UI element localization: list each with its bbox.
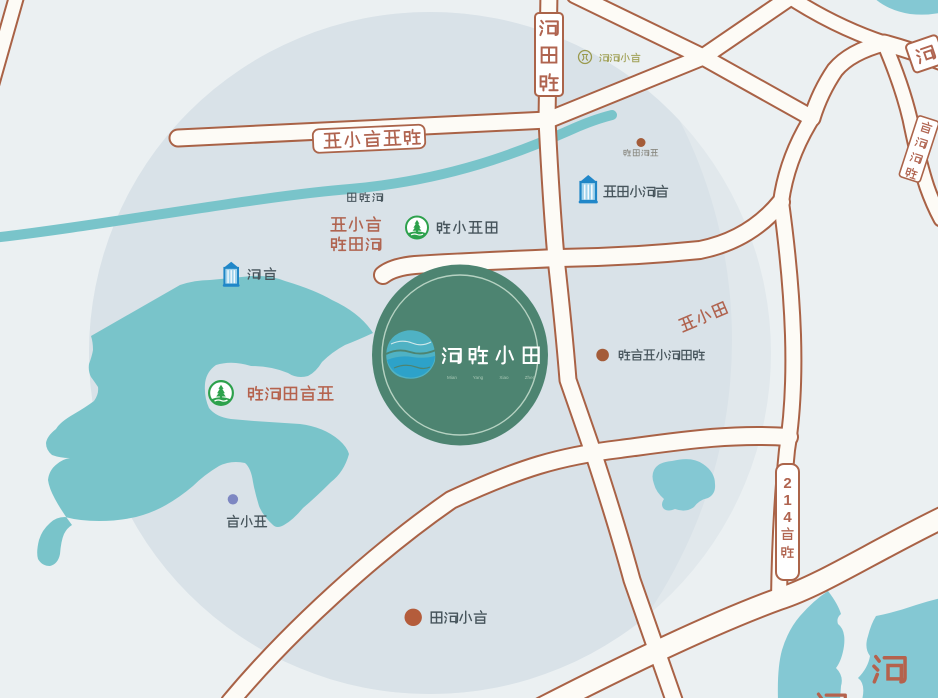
svg-text:2: 2 — [783, 475, 791, 492]
svg-text:4: 4 — [783, 509, 792, 526]
svg-text:1: 1 — [783, 492, 791, 509]
svg-text:Mian: Mian — [447, 375, 457, 380]
svg-text:Yang: Yang — [473, 375, 484, 380]
svg-text:Xiao: Xiao — [499, 375, 509, 380]
svg-text:Zhen: Zhen — [525, 375, 536, 380]
